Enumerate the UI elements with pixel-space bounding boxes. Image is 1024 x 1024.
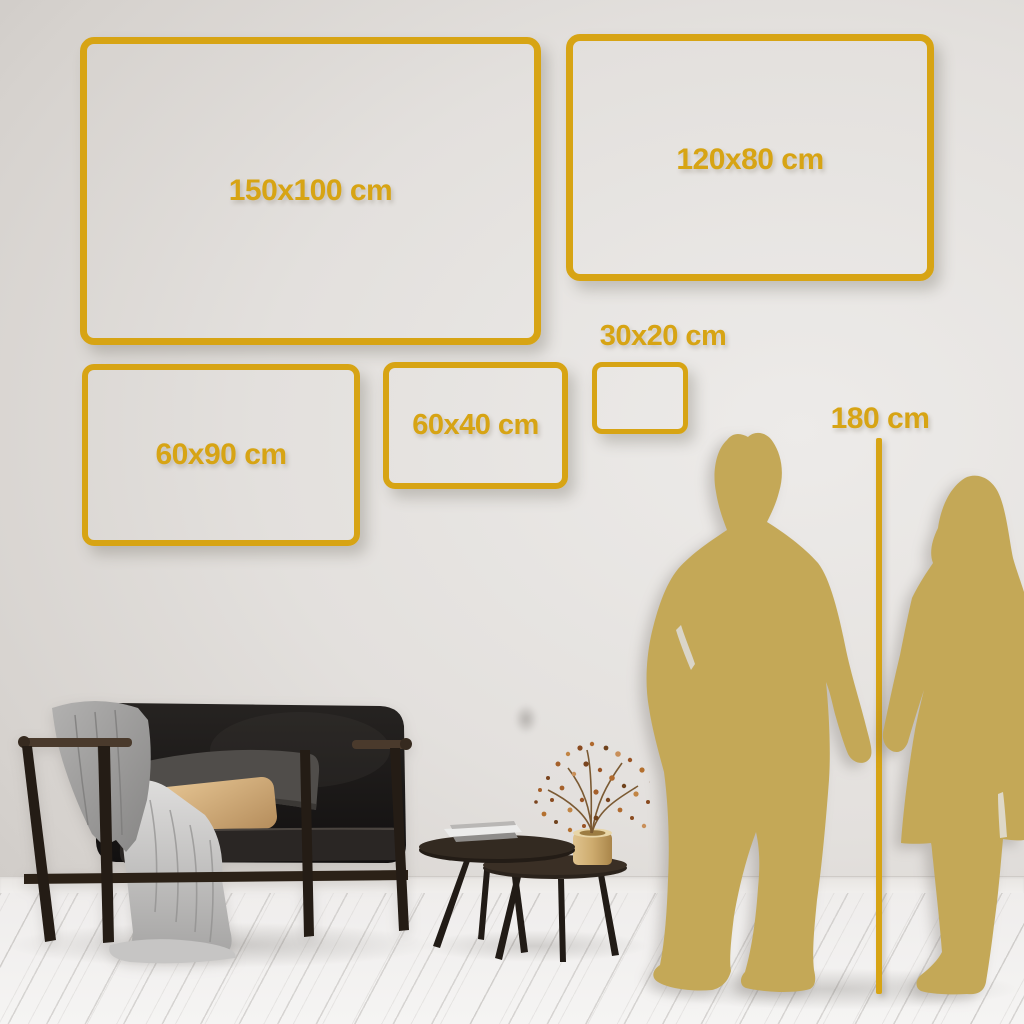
- woman-silhouette: [883, 476, 1024, 995]
- man-silhouette: [647, 433, 872, 992]
- size-frame-120x80: 120x80 cm: [566, 34, 934, 281]
- size-label-60x90: 60x90 cm: [155, 438, 286, 472]
- coffee-tables: [410, 730, 650, 965]
- size-label-150x100: 150x100 cm: [229, 174, 393, 208]
- wall-size-guide-scene: 150x100 cm 120x80 cm 60x90 cm 60x40 cm 3…: [0, 0, 1024, 1024]
- size-frame-150x100: 150x100 cm: [80, 37, 541, 345]
- size-frame-60x40: 60x40 cm: [383, 362, 568, 489]
- sofa: [0, 690, 440, 980]
- size-label-60x40: 60x40 cm: [412, 409, 539, 442]
- brass-vase: [573, 829, 612, 866]
- size-label-30x20: 30x20 cm: [588, 320, 738, 353]
- size-label-120x80: 120x80 cm: [676, 143, 823, 177]
- couple-holding-hands-silhouette: [615, 420, 1024, 1005]
- size-frame-60x90: 60x90 cm: [82, 364, 360, 546]
